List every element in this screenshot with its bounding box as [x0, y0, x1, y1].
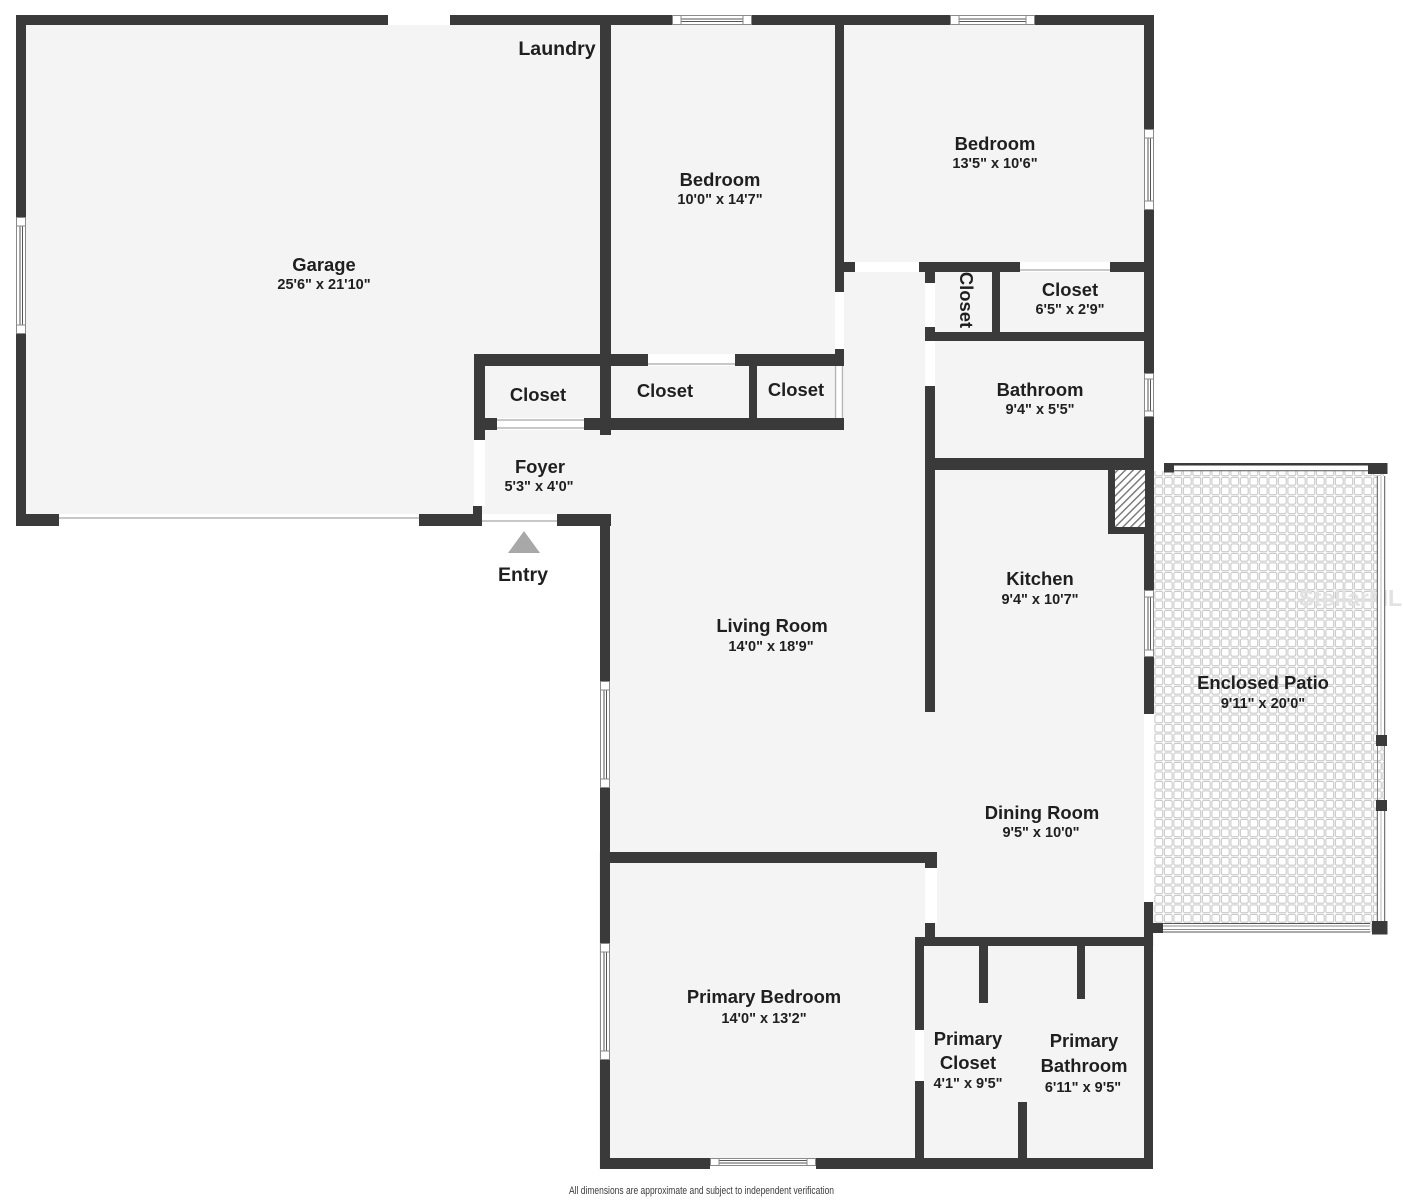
svg-text:14'0" x 18'9": 14'0" x 18'9" — [728, 639, 813, 655]
svg-text:Closet: Closet — [940, 1052, 996, 1073]
svg-text:Garage: Garage — [292, 254, 355, 275]
svg-text:13'5" x 10'6": 13'5" x 10'6" — [952, 156, 1037, 172]
svg-text:Bedroom: Bedroom — [680, 169, 761, 190]
svg-text:All dimensions are approximate: All dimensions are approximate and subje… — [569, 1185, 834, 1197]
svg-text:Bathroom: Bathroom — [1041, 1055, 1128, 1076]
svg-text:Closet: Closet — [768, 379, 824, 400]
svg-text:9'4" x 5'5": 9'4" x 5'5" — [1005, 402, 1074, 418]
svg-text:Kitchen: Kitchen — [1006, 568, 1073, 589]
svg-text:Closet: Closet — [510, 384, 566, 405]
svg-text:Entry: Entry — [498, 564, 548, 586]
svg-text:14'0" x 13'2": 14'0" x 13'2" — [721, 1011, 806, 1027]
svg-text:Closet: Closet — [1042, 279, 1098, 300]
svg-text:9'5" x 10'0": 9'5" x 10'0" — [1002, 825, 1079, 841]
svg-text:Primary: Primary — [934, 1028, 1003, 1049]
svg-text:Dining Room: Dining Room — [985, 802, 1099, 823]
svg-text:9'11" x 20'0": 9'11" x 20'0" — [1221, 696, 1305, 712]
svg-text:6'11" x 9'5": 6'11" x 9'5" — [1045, 1080, 1121, 1096]
svg-text:Closet: Closet — [637, 380, 693, 401]
svg-text:Enclosed Patio: Enclosed Patio — [1197, 672, 1329, 693]
svg-text:Living Room: Living Room — [716, 615, 827, 636]
svg-text:Bedroom: Bedroom — [955, 133, 1036, 154]
svg-text:10'0" x 14'7": 10'0" x 14'7" — [677, 192, 762, 208]
svg-text:Primary Bedroom: Primary Bedroom — [687, 986, 841, 1007]
svg-text:Laundry: Laundry — [518, 38, 595, 60]
svg-text:Bathroom: Bathroom — [997, 379, 1084, 400]
svg-text:Foyer: Foyer — [515, 456, 565, 477]
svg-text:Primary: Primary — [1050, 1030, 1119, 1051]
svg-text:StellarMLS: StellarMLS — [1299, 585, 1403, 611]
svg-text:4'1" x 9'5": 4'1" x 9'5" — [933, 1076, 1002, 1092]
svg-text:5'3" x 4'0": 5'3" x 4'0" — [504, 479, 573, 495]
svg-text:9'4" x 10'7": 9'4" x 10'7" — [1001, 592, 1078, 608]
svg-text:Closet: Closet — [956, 272, 977, 328]
svg-text:25'6" x 21'10": 25'6" x 21'10" — [277, 277, 370, 293]
svg-text:6'5" x 2'9": 6'5" x 2'9" — [1035, 302, 1104, 318]
